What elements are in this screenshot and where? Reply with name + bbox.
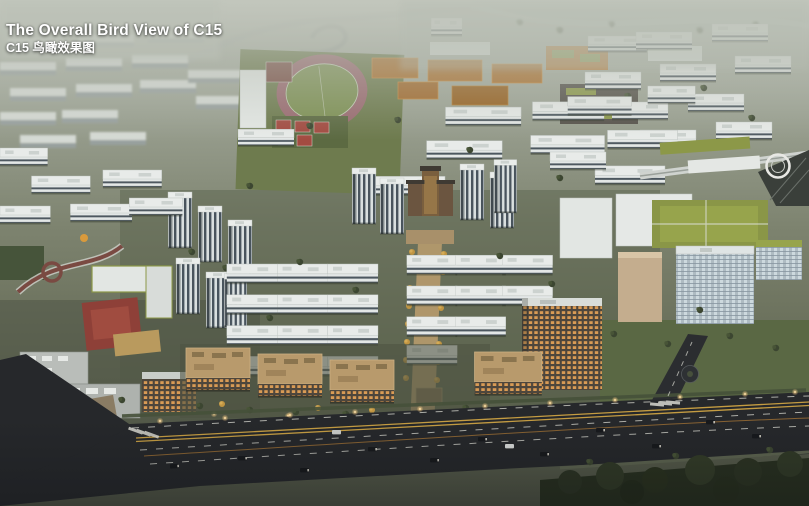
title-chinese: C15 鸟瞰效果图: [6, 42, 222, 56]
kindergarten-red-courtyard: [82, 266, 172, 356]
glass-office-tower: [676, 246, 754, 324]
c15-aerial-rendering: The Overall Bird View of C15 C15 鸟瞰效果图: [0, 0, 809, 506]
title-overlay: The Overall Bird View of C15 C15 鸟瞰效果图: [6, 22, 222, 56]
title-english: The Overall Bird View of C15: [6, 22, 222, 40]
rendering-canvas: [0, 0, 809, 506]
green-top-tower: [756, 240, 802, 280]
